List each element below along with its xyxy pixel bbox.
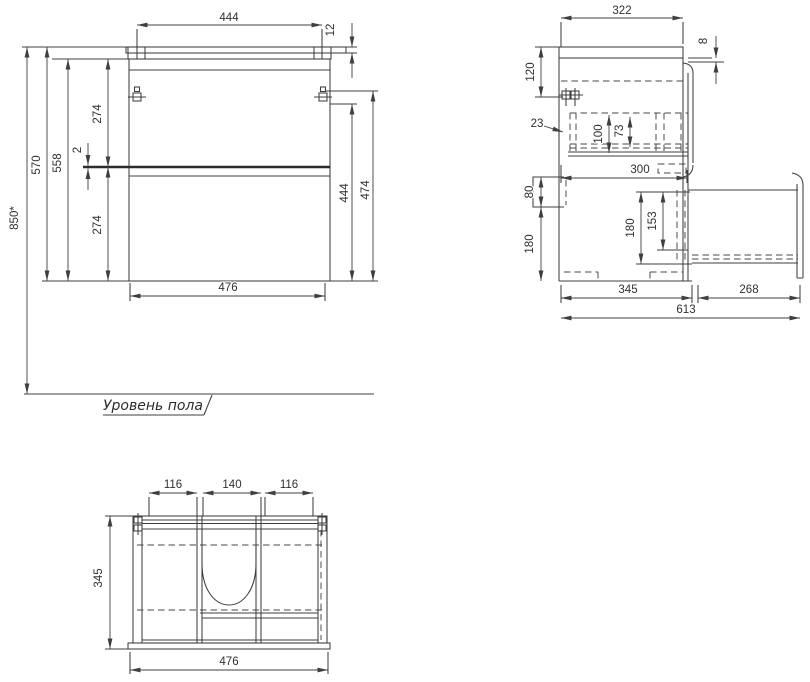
dim-front-width-top: 444: [219, 12, 239, 24]
dim-bottom-right-116: 116: [280, 479, 298, 491]
dim-side-drawer-180: 180: [625, 218, 637, 237]
technical-drawing-page: 444 12 570 558 274 2 274 850* 444 474 47…: [0, 0, 810, 682]
dim-bottom-width-476: 476: [219, 656, 238, 668]
side-extension-lines: [535, 22, 800, 303]
dim-side-depth-300: 300: [630, 164, 649, 176]
hinge-icon: [321, 87, 326, 92]
leader-23: [544, 126, 563, 132]
dim-front-height-total: 850*: [9, 206, 21, 230]
dim-side-depth-322: 322: [612, 5, 631, 17]
dim-front-upper-274: 274: [92, 104, 104, 124]
dim-side-inner-73: 73: [614, 125, 626, 138]
front-view: 444 12 570 558 274 2 274 850* 444 474 47…: [9, 12, 378, 415]
dim-front-right-474: 474: [360, 180, 372, 200]
dim-front-countertop-thickness: 12: [325, 24, 337, 37]
dim-side-offset-23: 23: [531, 118, 544, 130]
dim-side-bracket-80: 80: [524, 186, 536, 199]
dim-side-inner-100: 100: [593, 124, 605, 143]
side-hidden-lines: [561, 81, 798, 281]
dim-front-width-bottom: 476: [218, 282, 237, 294]
dim-side-bracket-180: 180: [524, 234, 536, 253]
hinge-icon: [135, 87, 140, 92]
front-top-rail-line: [129, 70, 330, 176]
dim-side-total-613: 613: [676, 304, 695, 316]
dim-front-height-558: 558: [52, 153, 64, 172]
front-countertop: [126, 47, 346, 53]
bottom-cabinet-outline: [133, 516, 327, 643]
cabinet-dimension-drawing: 444 12 570 558 274 2 274 850* 444 474 47…: [0, 0, 810, 682]
dim-bottom-left-116: 116: [164, 479, 182, 491]
side-slide-bracket: [658, 164, 686, 173]
bottom-view: 116 140 116 345 476: [93, 479, 330, 674]
side-view: 322 8 120 23 100 73 300 80 180 180 153 3…: [524, 5, 803, 318]
dim-front-height-570: 570: [31, 155, 43, 174]
side-door-front: [683, 63, 803, 278]
dim-side-offset-120: 120: [525, 62, 537, 81]
bottom-hidden-lines: [137, 530, 322, 640]
dim-side-extension-268: 268: [739, 284, 758, 296]
dim-bottom-center-140: 140: [222, 479, 241, 491]
dim-front-lower-274: 274: [92, 215, 104, 235]
dim-side-gap-8: 8: [698, 38, 710, 44]
dim-bottom-depth-345: 345: [93, 568, 105, 587]
front-cabinet-outline: [129, 59, 330, 281]
floor-level-label: Уровень пола: [103, 398, 203, 414]
bottom-countertop-edge: [128, 643, 330, 649]
dim-side-depth-345: 345: [618, 284, 637, 296]
dim-side-drawer-153: 153: [647, 211, 659, 230]
dim-front-gap-2: 2: [72, 147, 84, 153]
side-countertop: [559, 47, 683, 58]
dim-front-right-444: 444: [339, 183, 351, 203]
sink-cutout: [202, 542, 256, 605]
bottom-internal-lines: [138, 513, 322, 643]
